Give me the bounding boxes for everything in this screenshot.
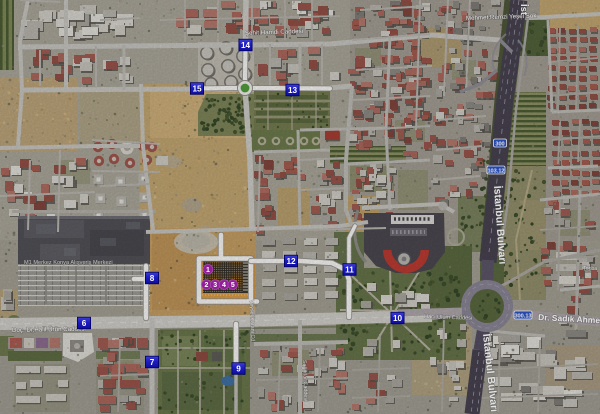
svg-text:12: 12: [286, 257, 296, 266]
svg-text:9: 9: [236, 365, 241, 374]
svg-text:5: 5: [231, 282, 235, 289]
svg-text:7: 7: [150, 358, 155, 367]
svg-text:11: 11: [345, 266, 354, 275]
svg-text:14: 14: [241, 41, 251, 50]
svg-text:1: 1: [206, 267, 210, 274]
svg-text:2: 2: [204, 282, 208, 289]
svg-text:8: 8: [150, 274, 155, 283]
svg-text:4: 4: [222, 282, 226, 289]
svg-text:13: 13: [288, 86, 298, 95]
svg-text:6: 6: [82, 319, 87, 328]
svg-text:15: 15: [192, 85, 202, 94]
svg-text:3: 3: [213, 282, 217, 289]
svg-text:10: 10: [393, 314, 403, 323]
